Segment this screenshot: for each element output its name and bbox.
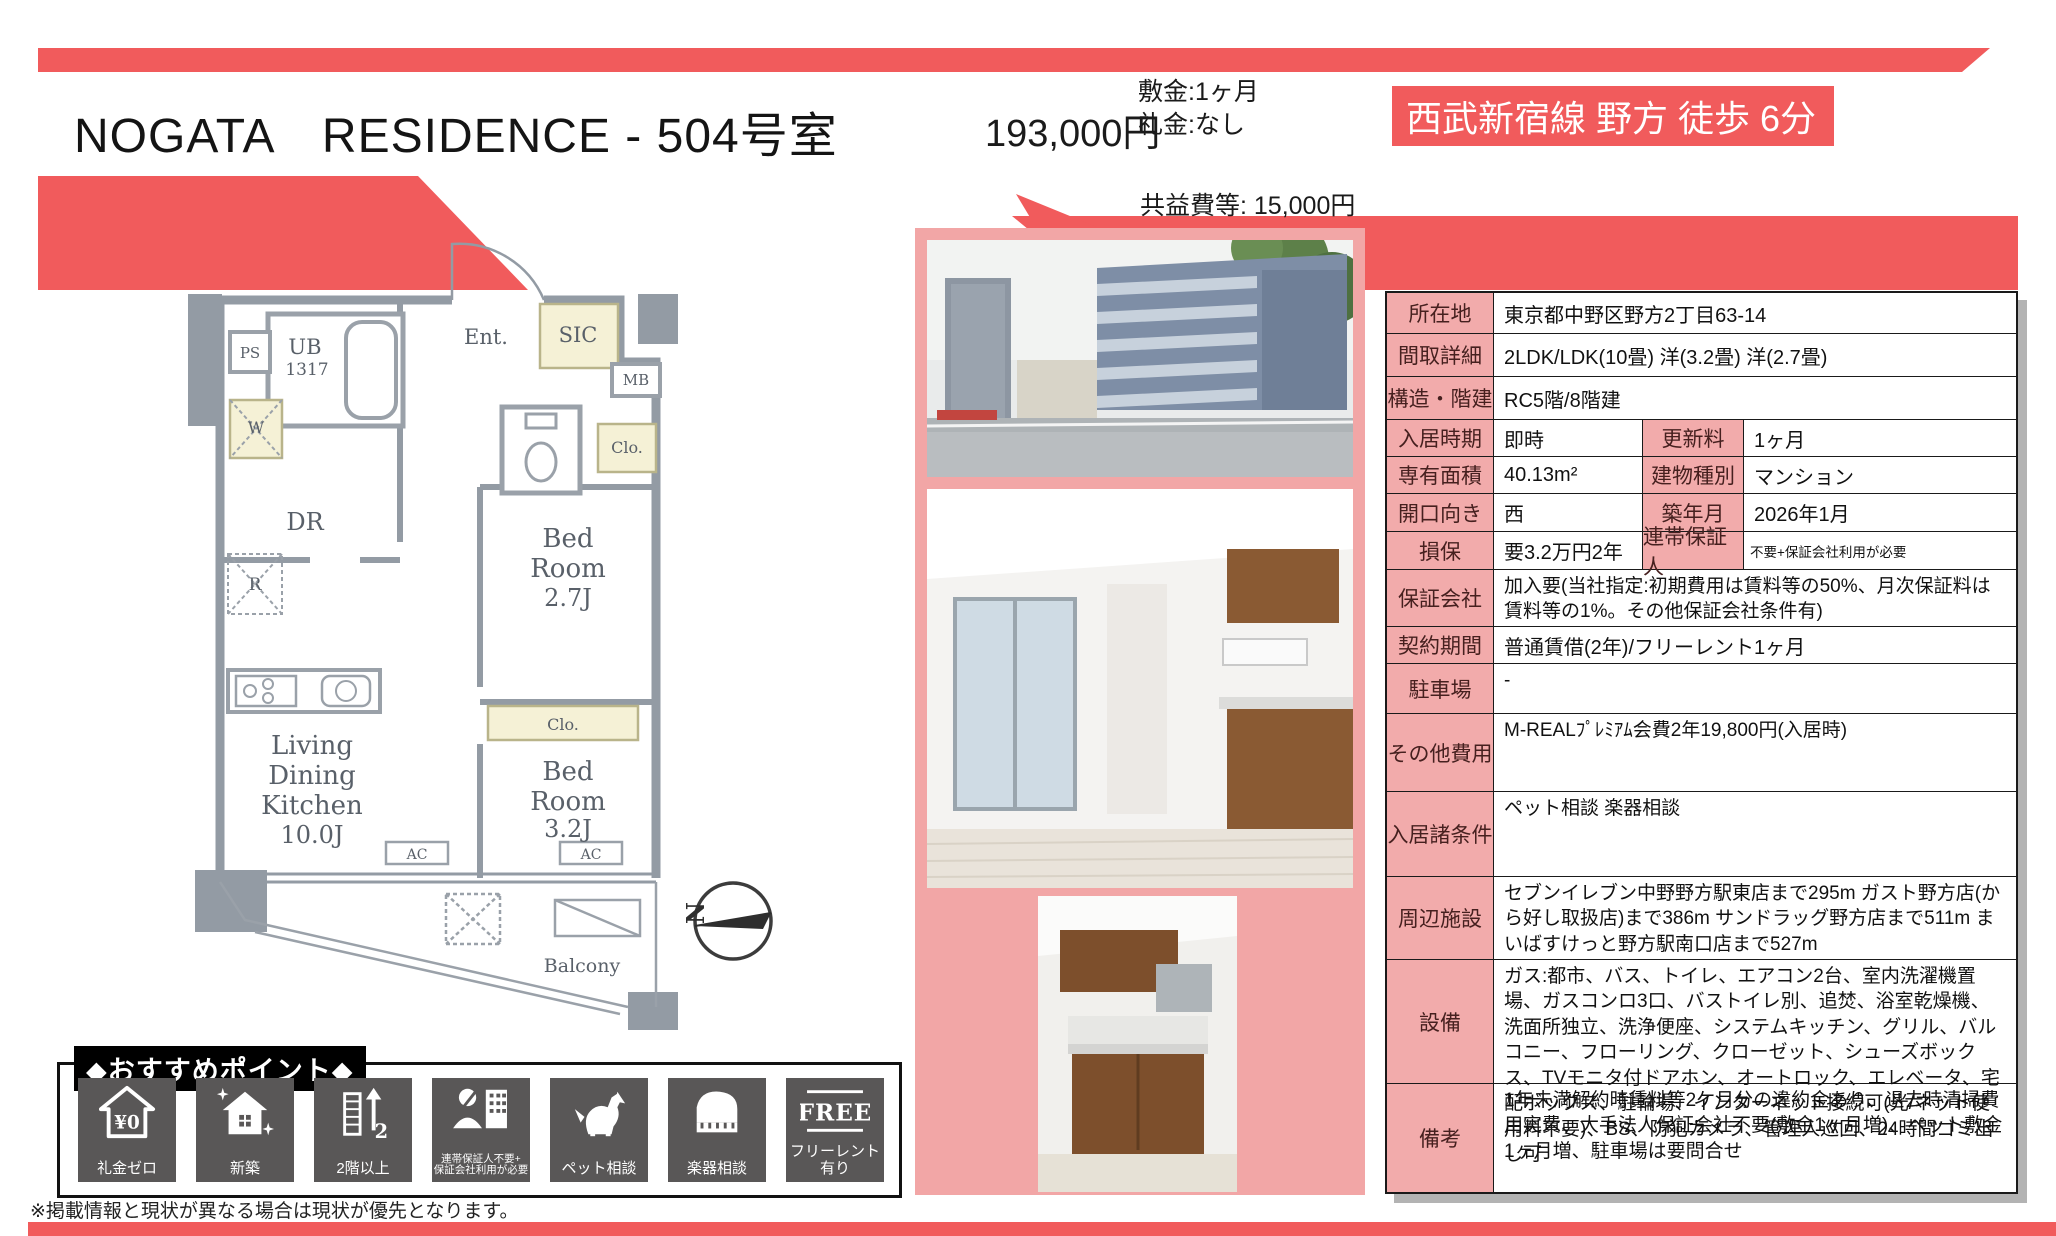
point-label: 新築 <box>230 1161 260 1178</box>
row-label: 入居時期 <box>1387 420 1494 456</box>
row-value: マンション <box>1744 457 2016 493</box>
row-label: 設備 <box>1387 960 1494 1083</box>
table-row: 周辺施設 セブンイレブン中野野方駅東店まで295m ガスト野方店(から好し取扱店… <box>1387 877 2016 960</box>
label-entrance: Ent. <box>464 325 508 349</box>
row-value: 1ヶ月 <box>1744 420 2016 456</box>
building-floors-icon: 2 <box>332 1084 394 1142</box>
row-value: 40.13m² <box>1494 457 1642 493</box>
table-row: 駐車場 - <box>1387 664 2016 714</box>
row-value: - <box>1494 664 2016 713</box>
label-ac1: AC <box>406 847 428 863</box>
table-row: 保証会社 加入要(当社指定:初期費用は賃料等の50%、月次保証料は賃料等の1%。… <box>1387 570 2016 627</box>
label-closet-hall: Clo. <box>611 438 643 457</box>
row-value: M-REALﾌﾟﾚﾐｱﾑ会費2年19,800円(入居時) <box>1494 714 2016 791</box>
property-spec-table: 所在地 東京都中野区野方2丁目63-14 間取詳細 2LDK/LDK(10畳) … <box>1385 291 2018 1194</box>
label-ldk-line2: Dining <box>268 761 356 791</box>
photo-building-exterior <box>927 240 1353 477</box>
pet-dog-icon <box>568 1084 630 1142</box>
label-bed2-line1: Bed <box>542 757 593 787</box>
row-label: 駐車場 <box>1387 664 1494 713</box>
row-label: 間取詳細 <box>1387 334 1494 376</box>
free-text: FREE <box>800 1100 870 1127</box>
table-row: 入居時期 即時 更新料 1ヶ月 <box>1387 420 2016 457</box>
row-label: 更新料 <box>1642 420 1744 456</box>
key-money: 礼金:なし <box>1138 109 1259 142</box>
table-row: その他費用 M-REALﾌﾟﾚﾐｱﾑ会費2年19,800円(入居時) <box>1387 714 2016 792</box>
point-item-free-rent: FREE フリーレント有り <box>786 1078 884 1182</box>
table-row: 構造・階建 RC5階/8階建 <box>1387 377 2016 420</box>
row-value: ガス:都市、バス、トイレ、エアコン2台、室内洗濯機置場、ガスコンロ3口、バストイ… <box>1494 960 2016 1083</box>
point-item-instruments: 楽器相談 <box>668 1078 766 1182</box>
row-label: 構造・階建 <box>1387 377 1494 419</box>
yen-zero-text: ¥0 <box>114 1112 140 1133</box>
label-bed1-line2: Room <box>530 554 606 584</box>
point-item-upper-floor: 2 2階以上 <box>314 1078 412 1182</box>
label-ac2: AC <box>580 847 602 863</box>
row-value: 普通賃借(2年)/フリーレント1ヶ月 <box>1494 627 2016 663</box>
piano-icon <box>686 1084 748 1142</box>
photo-kitchen <box>1038 896 1237 1192</box>
label-ub: UB <box>288 335 321 359</box>
table-row: 契約期間 普通賃借(2年)/フリーレント1ヶ月 <box>1387 627 2016 664</box>
label-mb: MB <box>623 371 649 389</box>
station-banner: 西武新宿線 野方 徒歩 6分 <box>1392 86 1834 146</box>
row-value: 加入要(当社指定:初期費用は賃料等の50%、月次保証料は賃料等の1%。その他保証… <box>1494 570 2016 626</box>
point-label: 2階以上 <box>336 1161 389 1178</box>
yen-zero-house-icon: ¥0 <box>96 1084 158 1142</box>
table-row: 設備 ガス:都市、バス、トイレ、エアコン2台、室内洗濯機置場、ガスコンロ3口、バ… <box>1387 960 2016 1084</box>
photo-living-room <box>927 489 1353 888</box>
footer-disclaimer: ※掲載情報と現状が異なる場合は現状が優先となります。 <box>30 1196 518 1223</box>
point-label: 連帯保証人不要+ 保証会社利用が必要 <box>434 1154 529 1177</box>
label-washer: W <box>248 418 265 437</box>
label-ldk-line3: Kitchen <box>261 791 363 821</box>
page-title: NOGATA RESIDENCE - 504号室 <box>74 96 838 166</box>
row-label: 損保 <box>1387 532 1494 569</box>
free-rent-icon: FREE <box>800 1084 870 1138</box>
floor-number-text: 2 <box>375 1120 388 1142</box>
label-bed1-line1: Bed <box>542 524 593 554</box>
table-row: 間取詳細 2LDK/LDK(10畳) 洋(3.2畳) 洋(2.7畳) <box>1387 334 2016 377</box>
label-ub-size: 1317 <box>285 360 328 380</box>
guarantor-building-icon <box>450 1084 512 1134</box>
kitchen-illustration <box>1038 896 1237 1192</box>
row-label: 連帯保証人 <box>1642 532 1744 569</box>
row-label: 備考 <box>1387 1084 1494 1192</box>
photo-panel <box>915 228 1365 1195</box>
label-bed2-line2: Room <box>530 787 606 817</box>
floorplan: PS UB 1317 W DR R Ent. SIC MB Clo. Bed R… <box>150 232 680 1032</box>
new-build-house-icon <box>214 1084 276 1142</box>
row-label: 入居諸条件 <box>1387 792 1494 876</box>
row-value: 西 <box>1494 494 1642 531</box>
deposit: 敷金:1ヶ月 <box>1138 76 1259 109</box>
row-label: その他費用 <box>1387 714 1494 791</box>
label-bed2-size: 3.2J <box>544 815 592 843</box>
table-row: 損保 要3.2万円2年 連帯保証人 不要+保証会社利用が必要 <box>1387 532 2016 570</box>
label-sic: SIC <box>559 323 598 347</box>
row-label: 保証会社 <box>1387 570 1494 626</box>
row-value: 1年未満解約時賃料等2ケ月分の違約金あり、退去時清掃費用実費、大手法人保証会社不… <box>1494 1084 2016 1192</box>
row-value: RC5階/8階建 <box>1494 377 2016 419</box>
row-label: 契約期間 <box>1387 627 1494 663</box>
row-value: 即時 <box>1494 420 1642 456</box>
property-flyer-page: NOGATA RESIDENCE - 504号室 193,000円 敷金:1ヶ月… <box>0 0 2056 1236</box>
table-row: 所在地 東京都中野区野方2丁目63-14 <box>1387 293 2016 334</box>
row-value: ペット相談 楽器相談 <box>1494 792 2016 876</box>
label-bed1-size: 2.7J <box>544 584 592 612</box>
point-label: 礼金ゼロ <box>97 1161 157 1178</box>
balcony-outline <box>220 882 656 1014</box>
deposit-keymoney: 敷金:1ヶ月 礼金:なし <box>1138 76 1259 141</box>
compass-icon: N <box>683 873 778 968</box>
point-item-new-build: 新築 <box>196 1078 294 1182</box>
point-item-guarantor: 連帯保証人不要+ 保証会社利用が必要 <box>432 1078 530 1182</box>
label-dr: DR <box>286 508 324 536</box>
toilet <box>502 407 580 493</box>
row-label: 開口向き <box>1387 494 1494 531</box>
compass-north-label: N <box>683 902 710 924</box>
row-label: 専有面積 <box>1387 457 1494 493</box>
row-value: 2026年1月 <box>1744 494 2016 531</box>
row-value: 2LDK/LDK(10畳) 洋(3.2畳) 洋(2.7畳) <box>1494 334 2016 376</box>
label-ldk-line1: Living <box>271 731 353 761</box>
row-value: 不要+保証会社利用が必要 <box>1744 532 2016 569</box>
row-value: 東京都中野区野方2丁目63-14 <box>1494 293 2016 333</box>
common-fee: 共益費等: 15,000円 <box>1140 186 1355 222</box>
label-closet-bed: Clo. <box>547 715 579 734</box>
row-value: セブンイレブン中野野方駅東店まで295m ガスト野方店(から好し取扱店)まで38… <box>1494 877 2016 959</box>
label-ldk-size: 10.0J <box>280 821 343 849</box>
station-access: 西武新宿線 野方 徒歩 6分 <box>1406 90 1816 142</box>
point-label: ペット相談 <box>561 1161 636 1178</box>
building-exterior-illustration <box>927 240 1353 477</box>
row-label: 建物種別 <box>1642 457 1744 493</box>
row-label: 所在地 <box>1387 293 1494 333</box>
point-item-pets: ペット相談 <box>550 1078 648 1182</box>
point-item-no-key-money: ¥0 礼金ゼロ <box>78 1078 176 1182</box>
label-ps: PS <box>240 344 260 362</box>
row-value: 要3.2万円2年 <box>1494 532 1642 569</box>
point-label: フリーレント有り <box>786 1144 884 1177</box>
label-fridge: R <box>249 575 263 595</box>
row-label: 周辺施設 <box>1387 877 1494 959</box>
point-label: 楽器相談 <box>687 1161 747 1178</box>
living-room-illustration <box>927 489 1353 888</box>
table-row: 入居諸条件 ペット相談 楽器相談 <box>1387 792 2016 877</box>
label-balcony: Balcony <box>544 955 621 977</box>
rent-price: 193,000円 <box>985 102 1160 157</box>
table-row: 備考 1年未満解約時賃料等2ケ月分の違約金あり、退去時清掃費用実費、大手法人保証… <box>1387 1084 2016 1192</box>
table-row: 専有面積 40.13m² 建物種別 マンション <box>1387 457 2016 494</box>
